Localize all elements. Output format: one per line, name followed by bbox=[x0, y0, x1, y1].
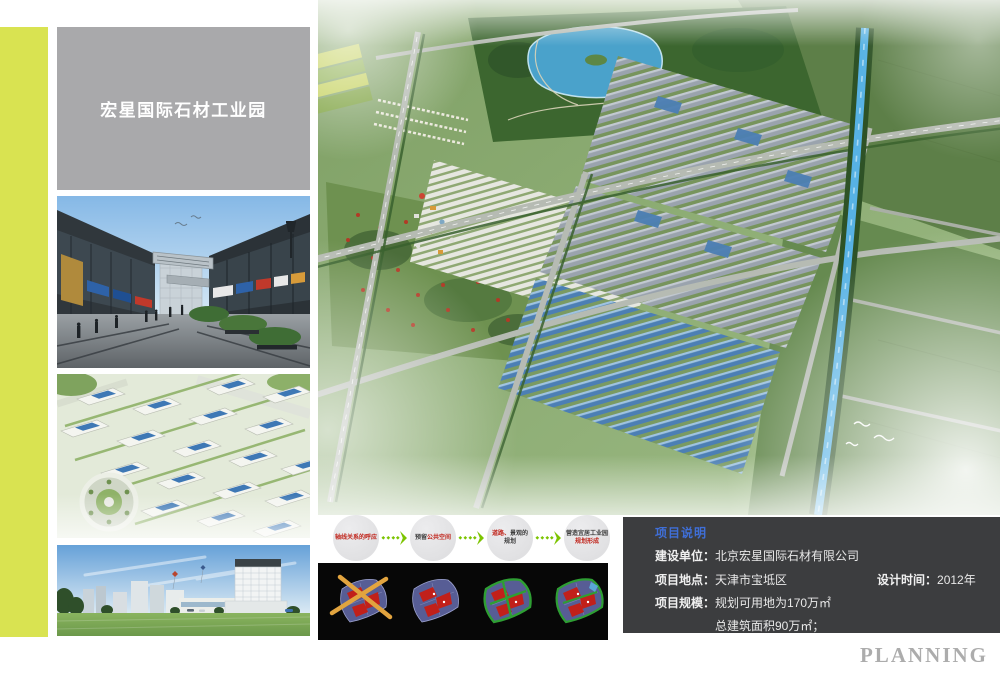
design-time: 设计时间：2012年 bbox=[877, 571, 976, 588]
flow-arrow-icon bbox=[381, 530, 407, 546]
masterplan-graphic bbox=[318, 0, 1000, 515]
project-info-panel: 项目说明 建设单位：北京宏星国际石材有限公司 项目地点：天津市宝坻区 设计时间：… bbox=[623, 517, 1000, 633]
owner-label: 建设单位： bbox=[655, 549, 715, 563]
concept-diagram-2 bbox=[413, 579, 459, 622]
owner-value: 北京宏星国际石材有限公司 bbox=[715, 549, 859, 563]
city-graphic bbox=[57, 545, 310, 636]
concept-diagrams-graphic bbox=[318, 563, 608, 640]
accent-stripe bbox=[0, 27, 48, 637]
location-value: 天津市宝坻区 bbox=[715, 573, 787, 587]
aerial-park-rendering-image bbox=[57, 374, 310, 538]
concept-diagram-4 bbox=[557, 579, 603, 622]
aerial-park-graphic bbox=[57, 374, 310, 538]
info-panel-title: 项目说明 bbox=[655, 524, 707, 541]
info-line-floor-area: 总建筑面积90万㎡； bbox=[715, 617, 824, 634]
street-rendering-image bbox=[57, 196, 310, 368]
masterplan-rendering-image bbox=[318, 0, 1000, 515]
flow-step-2: 预留公共空间 bbox=[410, 515, 456, 561]
gold-shop-sign bbox=[61, 254, 83, 306]
flow-step-2-label: 预留公共空间 bbox=[415, 534, 451, 542]
flow-step-4-line2: 规划形成 bbox=[575, 538, 599, 546]
info-line-owner: 建设单位：北京宏星国际石材有限公司 bbox=[655, 547, 859, 564]
flow-step-1-label: 轴线关系的呼应 bbox=[335, 534, 377, 542]
design-time-label: 设计时间： bbox=[877, 573, 937, 587]
design-time-value: 2012年 bbox=[937, 573, 976, 587]
concept-diagram-1 bbox=[332, 577, 390, 622]
scale-label: 项目规模： bbox=[655, 596, 715, 610]
flow-step-1: 轴线关系的呼应 bbox=[333, 515, 379, 561]
info-line-scale: 项目规模：规划可用地为170万㎡ bbox=[655, 594, 831, 611]
flow-step-4-line1: 营造宜居工业园 bbox=[566, 530, 608, 538]
flow-step-3-label: 道路、景观的规划 bbox=[489, 530, 531, 546]
flow-step-4: 营造宜居工业园 规划形成 bbox=[564, 515, 610, 561]
street-rendering-graphic bbox=[57, 196, 310, 368]
info-line-location: 项目地点：天津市宝坻区 设计时间：2012年 bbox=[655, 571, 787, 588]
concept-diagram-3 bbox=[485, 579, 531, 622]
project-title-card: 宏星国际石材工业园 bbox=[57, 27, 310, 190]
location-label: 项目地点： bbox=[655, 573, 715, 587]
city-rendering-image bbox=[57, 545, 310, 636]
planning-watermark: PLANNING bbox=[860, 643, 988, 668]
scale-value: 规划可用地为170万㎡ bbox=[715, 596, 831, 610]
concept-flow: 轴线关系的呼应 预留公共空间 道路、景观的规划 bbox=[318, 512, 618, 564]
concept-diagrams-panel bbox=[318, 563, 608, 640]
floor-area-value: 总建筑面积90万㎡； bbox=[715, 619, 824, 633]
flow-step-3: 道路、景观的规划 bbox=[487, 515, 533, 561]
project-title: 宏星国际石材工业园 bbox=[100, 96, 267, 121]
flow-arrow-icon bbox=[458, 530, 484, 546]
flow-arrow-icon bbox=[535, 530, 561, 546]
